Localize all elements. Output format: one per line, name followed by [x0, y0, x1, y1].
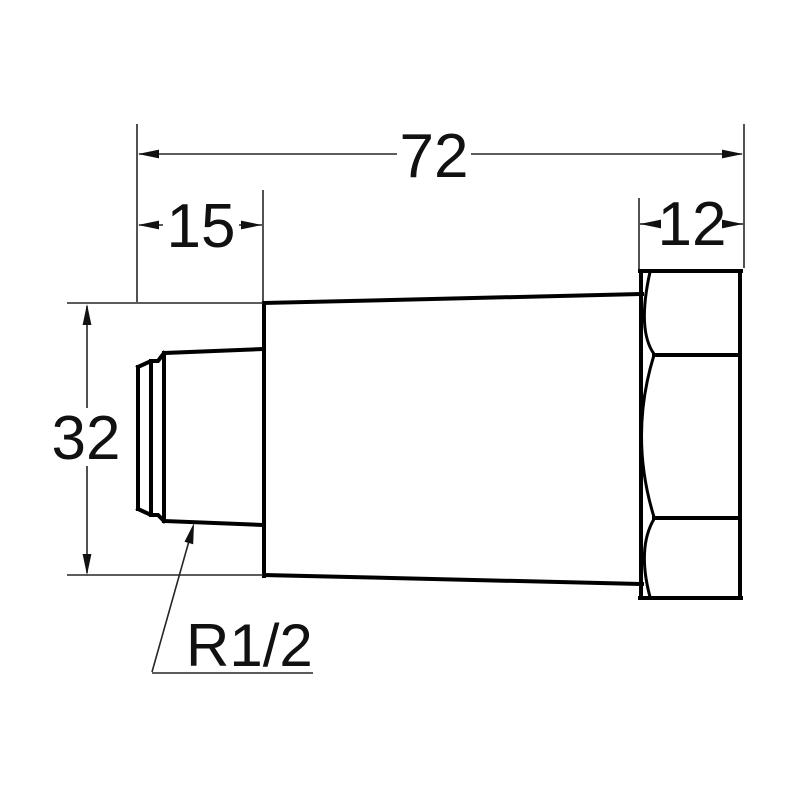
part-outline: [138, 271, 741, 598]
body-bottom-edge: [264, 575, 642, 584]
technical-drawing: 72 15 12 32: [0, 0, 800, 800]
dim-label-diameter: 32: [52, 404, 121, 473]
hex-nut-section: [640, 271, 741, 598]
drawing-canvas: 72 15 12 32: [0, 0, 800, 800]
arrowhead-15-left: [138, 221, 159, 230]
dim-label-thread-length: 15: [167, 192, 236, 261]
arrowhead-72-left: [138, 150, 159, 159]
thread-section: [138, 349, 264, 525]
leader-thread-spec: R1/2: [152, 523, 313, 679]
dim-thread-length: 15: [138, 192, 262, 261]
thread-crest-bottom: [164, 521, 264, 525]
dim-hex-width: 12: [640, 190, 743, 259]
dim-overall-length: 72: [138, 122, 743, 191]
arrowhead-leader: [185, 523, 195, 544]
label-thread-spec: R1/2: [186, 612, 313, 679]
leader-line: [152, 541, 189, 672]
dim-diameter: 32: [52, 304, 121, 575]
thread-crest-top: [164, 349, 264, 353]
arrowhead-72-right: [722, 150, 743, 159]
arrowhead-32-top: [83, 304, 92, 325]
arrowhead-32-bottom: [83, 554, 92, 575]
arrowhead-15-right: [241, 221, 262, 230]
nut-middle-chamfer-arc: [642, 355, 655, 517]
body-section: [264, 294, 642, 584]
body-top-edge: [264, 294, 642, 303]
dim-label-hex-width: 12: [658, 190, 727, 259]
dim-label-overall-length: 72: [400, 122, 469, 191]
nut-top-chamfer-arc: [644, 272, 654, 354]
nut-bottom-chamfer-arc: [644, 519, 654, 597]
